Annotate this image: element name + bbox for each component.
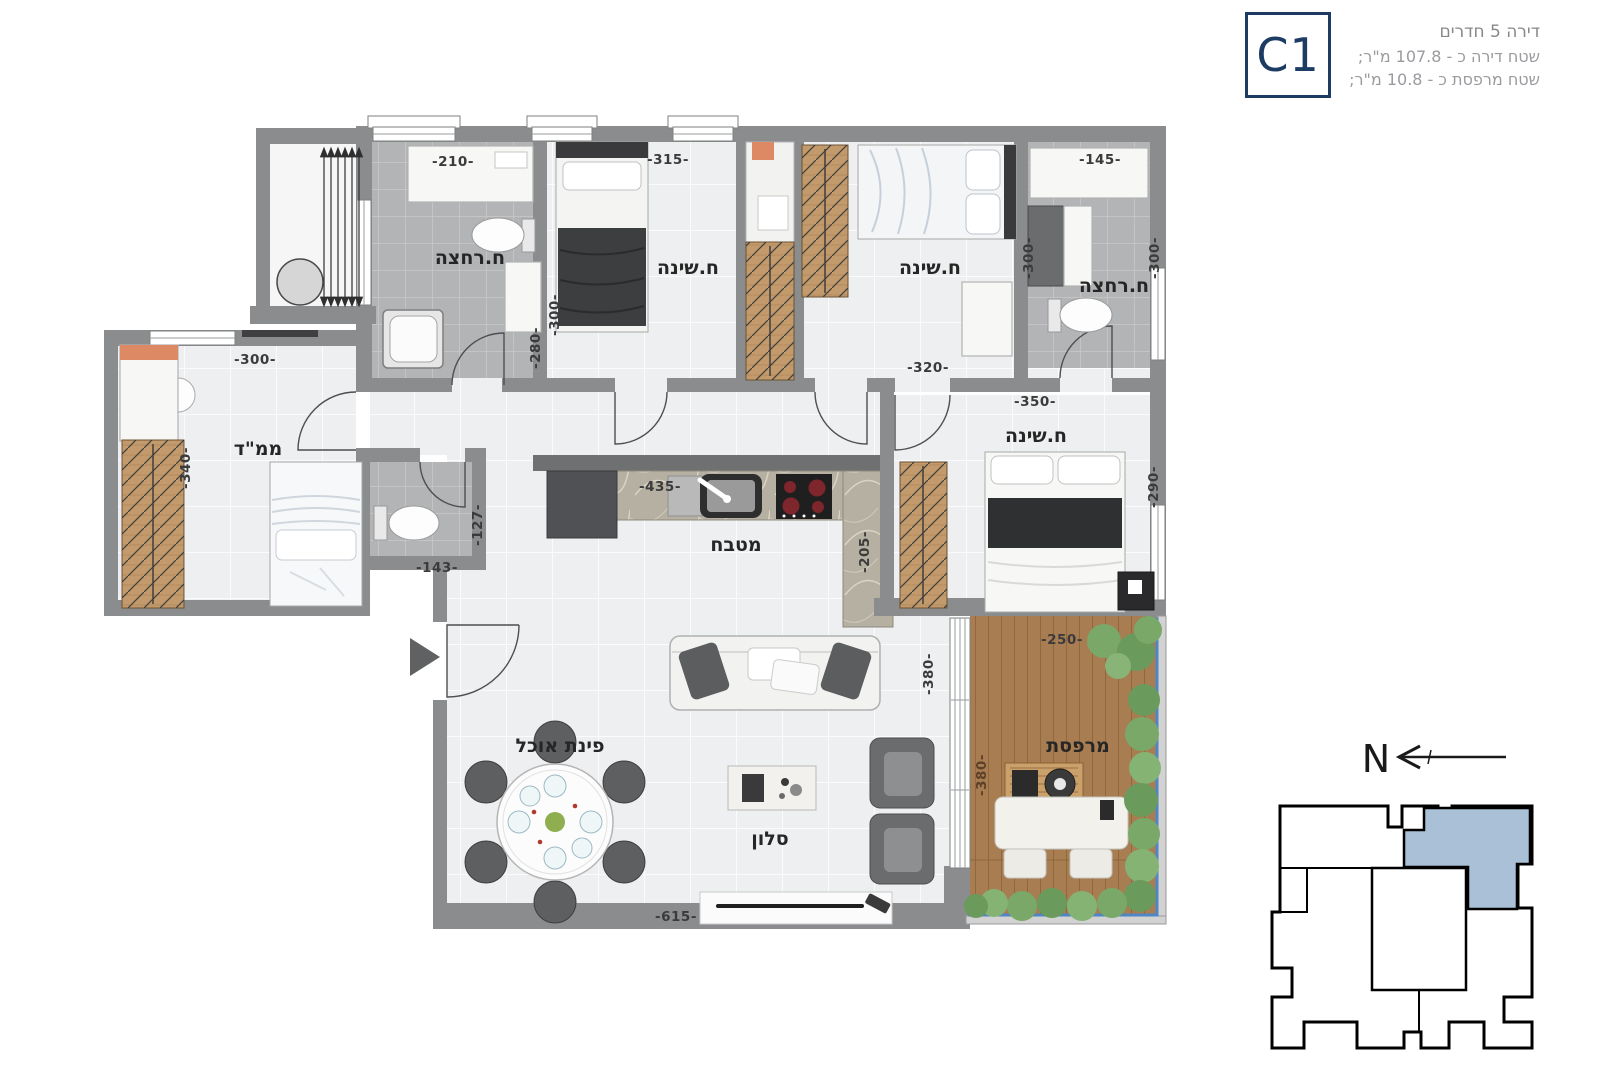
dim-bed1-depth: -300- (547, 294, 563, 336)
dim-bed1-width: -315- (647, 152, 689, 168)
stove-icon (776, 474, 832, 519)
room-label-mamad: ממ"ד (234, 438, 283, 460)
room-label-bed1: ח.שינה (657, 257, 719, 279)
closet-column (746, 142, 794, 242)
dim-master-width: -350- (1014, 394, 1056, 410)
kitchen-sink-icon (668, 474, 762, 518)
bed-icon (985, 452, 1125, 612)
dim-mamad-width: -300- (234, 352, 276, 368)
bed-icon (270, 462, 362, 606)
desk-icon (962, 282, 1012, 356)
dim-kitchen-width: -435- (639, 479, 681, 495)
window-sill (527, 116, 597, 128)
kitchen-back-wall (533, 455, 893, 471)
bath-cabinet (505, 262, 541, 332)
key-plan-core (1372, 868, 1466, 990)
room-label-bath2: ח.רחצה (1079, 275, 1149, 297)
fridge-icon (547, 471, 617, 538)
north-arrow: N (1362, 737, 1506, 781)
dim-bath2-depth: -300- (1147, 237, 1163, 279)
window-sill (668, 116, 738, 128)
dim-wc-depth: -127- (470, 504, 486, 546)
armchair-cushion (884, 752, 922, 796)
shower-icon (383, 310, 443, 368)
wardrobe-icon (746, 242, 794, 380)
centerpiece-plant-icon (545, 812, 565, 832)
bath-cabinet (1064, 206, 1092, 286)
key-plan (1272, 806, 1532, 1048)
dim-bed2-width: -320- (907, 360, 949, 376)
dim-mamad-depth: -340- (178, 447, 194, 489)
tv-console-icon (700, 892, 892, 924)
armchair-cushion (884, 828, 922, 872)
toilet-icon (1048, 298, 1112, 332)
north-label: N (1362, 737, 1390, 781)
entrance-arrow-icon (410, 638, 440, 676)
wardrobe-icon (802, 145, 848, 297)
dim-wc-width: -143- (416, 560, 458, 576)
boiler-icon (277, 259, 323, 305)
dim-balcony-width: -250- (1041, 632, 1083, 648)
wardrobe-icon (900, 462, 947, 608)
window-sill (368, 116, 460, 128)
room-label-balcony: מרפסת (1046, 735, 1110, 757)
room-label-living: סלון (751, 828, 788, 850)
room-label-bath1: ח.רחצה (435, 247, 505, 269)
sliding-door-balcony (950, 618, 970, 868)
bed-icon (858, 145, 1016, 239)
sofa-icon (670, 636, 880, 710)
coffee-table-icon (728, 766, 816, 810)
floor-plan-svg: ח.רחצה ח.שינה ח.שינה ח.רחצה ממ"ד ח.שינה … (0, 0, 1600, 1067)
master-furniture (900, 452, 1154, 612)
dim-bath1-width: -210- (432, 154, 474, 170)
dim-living-depth: -380- (921, 653, 937, 695)
dim-master-depth: -290- (1146, 466, 1162, 508)
room-label-master: ח.שינה (1005, 425, 1067, 447)
dim-shower-depth: -280- (528, 327, 544, 369)
wardrobe-icon (122, 440, 184, 608)
dim-bath2-width: -145- (1079, 152, 1121, 168)
bed-icon (556, 142, 648, 332)
dim-bed2-depth: -300- (1021, 237, 1037, 279)
toilet-icon (389, 506, 439, 540)
dim-balcony-depth: -380- (974, 754, 990, 796)
room-label-kitchen: מטבח (710, 534, 761, 556)
room-label-dining: פינת אוכל (516, 735, 605, 757)
room-label-bed2: ח.שינה (899, 257, 961, 279)
dim-kitchen-depth: -205- (857, 531, 873, 573)
wc-fixtures (374, 506, 439, 540)
corridor-floor (370, 392, 893, 455)
floor-plan-page: דירה 5 חדרים שטח דירה כ - 107.8 מ"ר; שטח… (0, 0, 1600, 1067)
dim-living-width: -615- (655, 909, 697, 925)
